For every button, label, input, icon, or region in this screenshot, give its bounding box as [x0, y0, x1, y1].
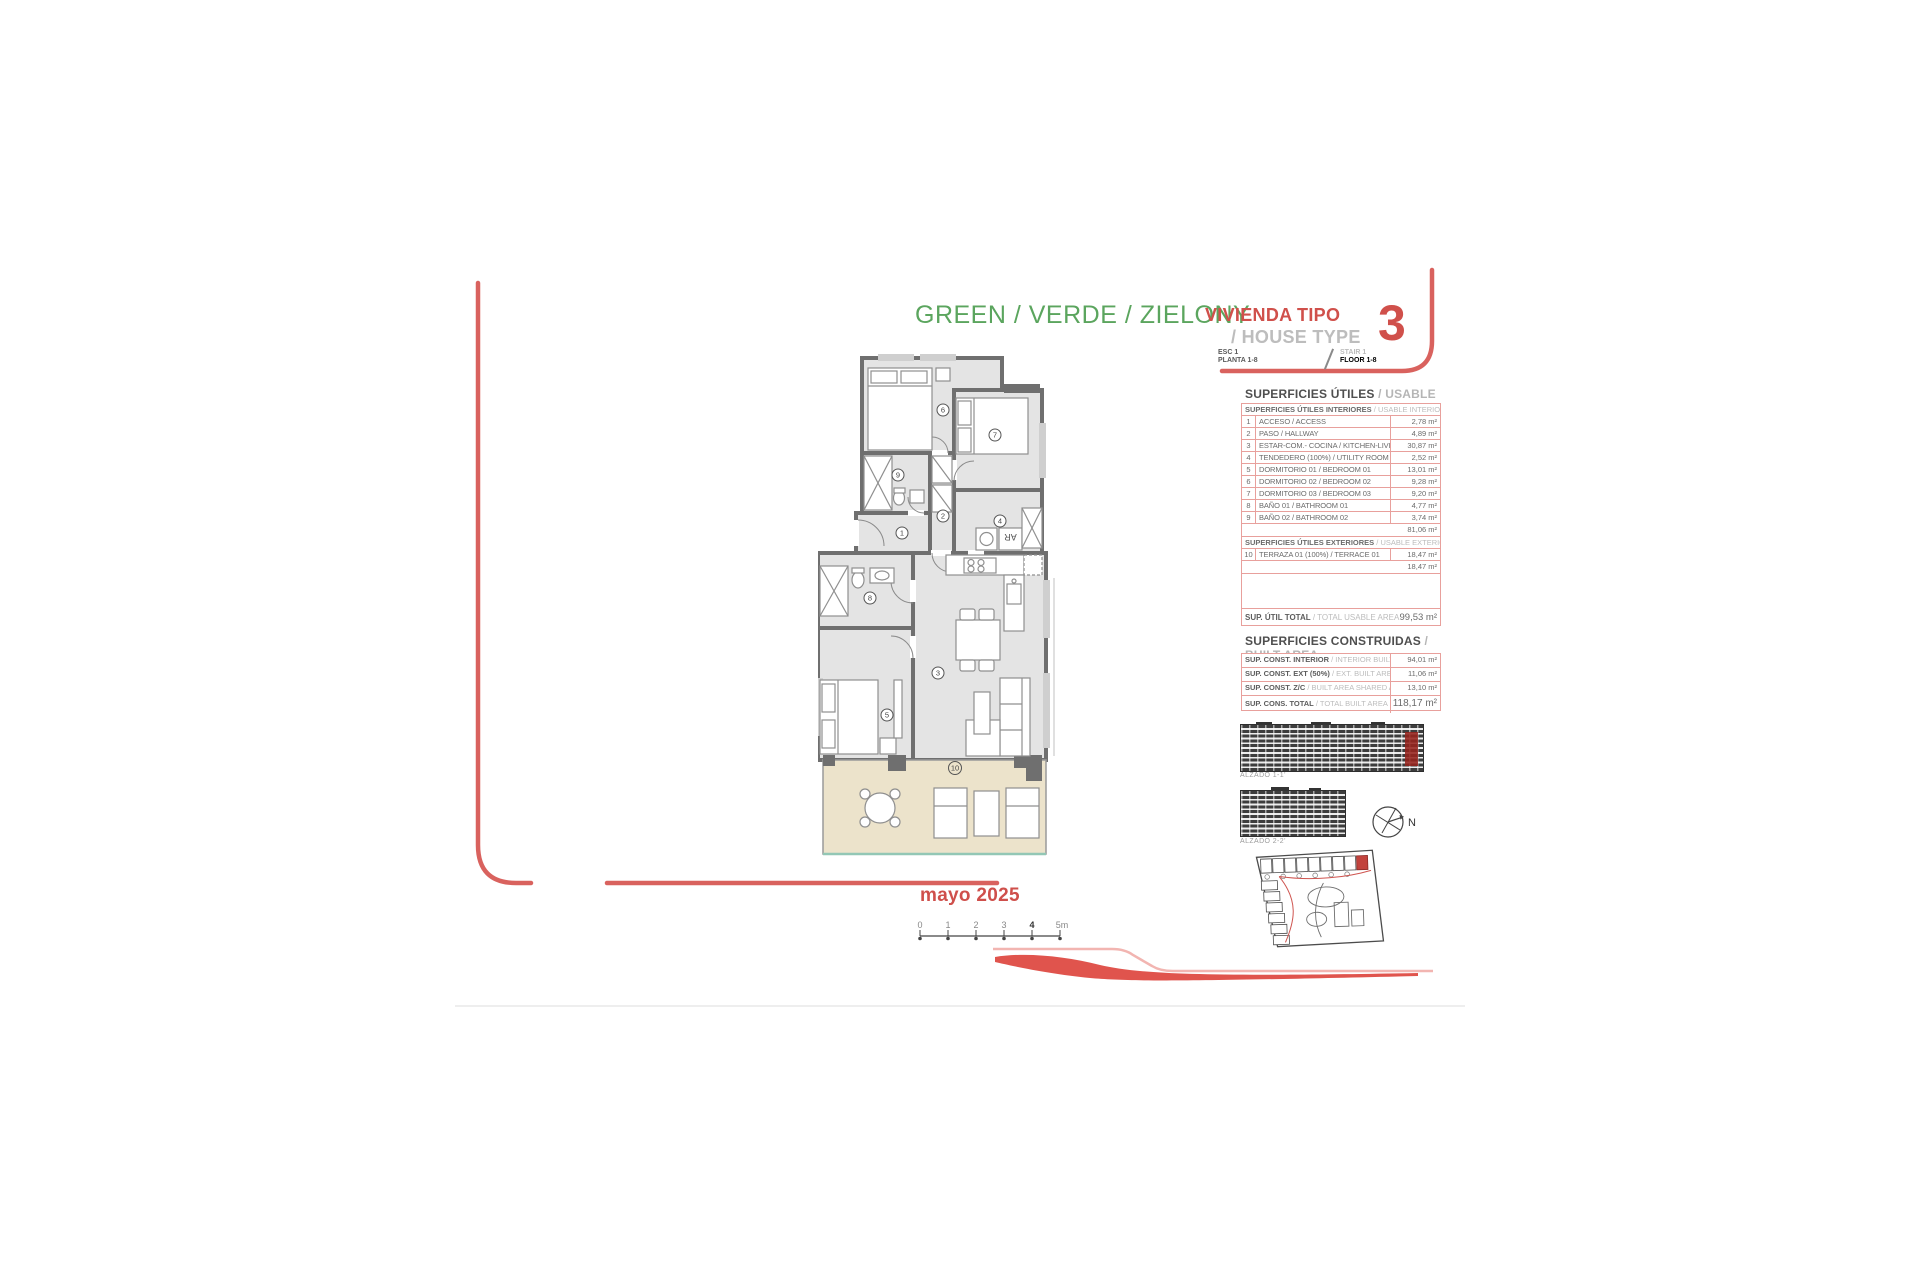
svg-text:2: 2 — [941, 512, 945, 521]
scale-tick-2: 2 — [973, 920, 978, 930]
table-spacer — [1242, 574, 1440, 608]
built-area-table: SUP. CONST. INTERIOR / INTERIOR BUILT AR… — [1241, 653, 1441, 711]
stair-label: STAIR 1 — [1340, 349, 1377, 357]
table-row: 3ESTAR-COM.- COCINA / KITCHEN-LIVING30,8… — [1242, 440, 1440, 452]
table-row: 4TENDEDERO (100%) / UTILITY ROOM2,52 m² — [1242, 452, 1440, 464]
table-row: 1ACCESO / ACCESS2,78 m² — [1242, 416, 1440, 428]
table-row: 2PASO / HALLWAY4,89 m² — [1242, 428, 1440, 440]
plan-sheet-page: GREEN / VERDE / ZIELONY VIVIENDA TIPO / … — [0, 0, 1920, 1280]
elevation-2-label: ALZADO 2-2' — [1240, 838, 1286, 845]
scale-bar: 0 1 2 3 4 5m — [905, 915, 1085, 947]
roof-detail — [1271, 787, 1289, 791]
roof-detail — [1311, 722, 1331, 725]
lintel — [1004, 384, 1040, 393]
svg-text:1: 1 — [900, 529, 904, 538]
svg-text:9: 9 — [896, 471, 900, 480]
usable-total-row: SUP. ÚTIL TOTAL / TOTAL USABLE AREA 99,5… — [1242, 608, 1440, 625]
highlighted-unit — [1405, 732, 1418, 766]
table-row: 9BAÑO 02 / BATHROOM 023,74 m² — [1242, 512, 1440, 524]
svg-text:7: 7 — [993, 431, 997, 440]
site-highlighted-unit — [1356, 855, 1367, 869]
compass-icon: N — [1370, 800, 1430, 844]
elevation-1-label: ALZADO 1-1' — [1240, 772, 1286, 779]
room-label-5: 5 — [881, 709, 893, 721]
table-row: 10TERRAZA 01 (100%) / TERRACE 0118,47 m² — [1242, 549, 1440, 561]
date-label: mayo 2025 — [920, 885, 1020, 907]
table-row: SUP. CONST. INTERIOR / INTERIOR BUILT AR… — [1242, 654, 1440, 668]
esc-label: ESC 1 — [1218, 349, 1258, 357]
interior-subtotal: 81,06 m² — [1242, 524, 1440, 537]
svg-text:8: 8 — [868, 594, 872, 603]
table-row: 7DORMITORIO 03 / BEDROOM 039,20 m² — [1242, 488, 1440, 500]
elevation-2-drawing — [1240, 790, 1346, 837]
table-row: 5DORMITORIO 01 / BEDROOM 0113,01 m² — [1242, 464, 1440, 476]
room-label-4: 4 — [994, 515, 1006, 527]
roof-detail — [1309, 788, 1321, 791]
roof-detail — [1256, 722, 1272, 725]
site-plan — [1254, 845, 1404, 960]
planta-label: PLANTA 1-8 — [1218, 357, 1258, 365]
room-label-1: 1 — [896, 527, 908, 539]
exterior-subtotal: 18,47 m² — [1242, 561, 1440, 574]
room-label-2: 2 — [937, 510, 949, 522]
scale-tick-0: 0 — [917, 920, 922, 930]
usable-area-table: SUPERFICIES ÚTILES INTERIORES / USABLE I… — [1241, 403, 1441, 626]
built-total-row: SUP. CONS. TOTAL / TOTAL BUILT AREA 118,… — [1242, 696, 1440, 713]
stair-floor-es: ESC 1 PLANTA 1-8 — [1218, 349, 1258, 365]
floor-plan: AR 1 2 3 4 5 6 7 8 9 10 — [818, 328, 1163, 863]
scale-tick-3: 3 — [1001, 920, 1006, 930]
scale-tick-5: 5m — [1056, 920, 1069, 930]
scale-tick-4: 4 — [1029, 920, 1034, 930]
project-title: GREEN / VERDE / ZIELONY — [915, 301, 1250, 330]
compass-north-label: N — [1408, 817, 1416, 829]
svg-text:5: 5 — [885, 711, 889, 720]
decor-frame-left — [478, 283, 531, 883]
svg-text:6: 6 — [941, 406, 945, 415]
stair-floor-en: STAIR 1 FLOOR 1-8 — [1340, 349, 1377, 365]
house-type-label-es: VIVIENDA TIPO — [1205, 305, 1340, 326]
room-label-3: 3 — [932, 667, 944, 679]
table-row: SUP. CONST. EXT (50%) / EXT. BUILT AREA … — [1242, 668, 1440, 682]
room-label-10: 10 — [949, 762, 962, 775]
room-label-7: 7 — [989, 429, 1001, 441]
room-label-9: 9 — [892, 469, 904, 481]
room-label-6: 6 — [937, 404, 949, 416]
appliance-label: AR — [1004, 532, 1017, 542]
house-type-number: 3 — [1378, 297, 1406, 349]
svg-text:4: 4 — [998, 517, 1002, 526]
floor-label: FLOOR 1-8 — [1340, 357, 1377, 365]
svg-text:3: 3 — [936, 669, 940, 678]
exterior-header: SUPERFICIES ÚTILES EXTERIORES / USABLE E… — [1242, 537, 1440, 549]
roof-detail — [1371, 722, 1385, 725]
built-area-title-es: SUPERFICIES CONSTRUIDAS — [1245, 634, 1421, 648]
table-row: SUP. CONST. Z/C / BUILT AREA SHARED AREA… — [1242, 682, 1440, 696]
table-row: 8BAÑO 01 / BATHROOM 014,77 m² — [1242, 500, 1440, 512]
room-label-8: 8 — [864, 592, 876, 604]
elevation-1-drawing — [1240, 724, 1424, 772]
scale-tick-1: 1 — [945, 920, 950, 930]
house-type-label-en: / HOUSE TYPE — [1231, 327, 1361, 348]
usable-area-title-es: SUPERFICIES ÚTILES — [1245, 387, 1375, 401]
interior-header: SUPERFICIES ÚTILES INTERIORES / USABLE I… — [1242, 404, 1440, 416]
svg-text:10: 10 — [951, 764, 959, 773]
table-row: 6DORMITORIO 02 / BEDROOM 029,28 m² — [1242, 476, 1440, 488]
